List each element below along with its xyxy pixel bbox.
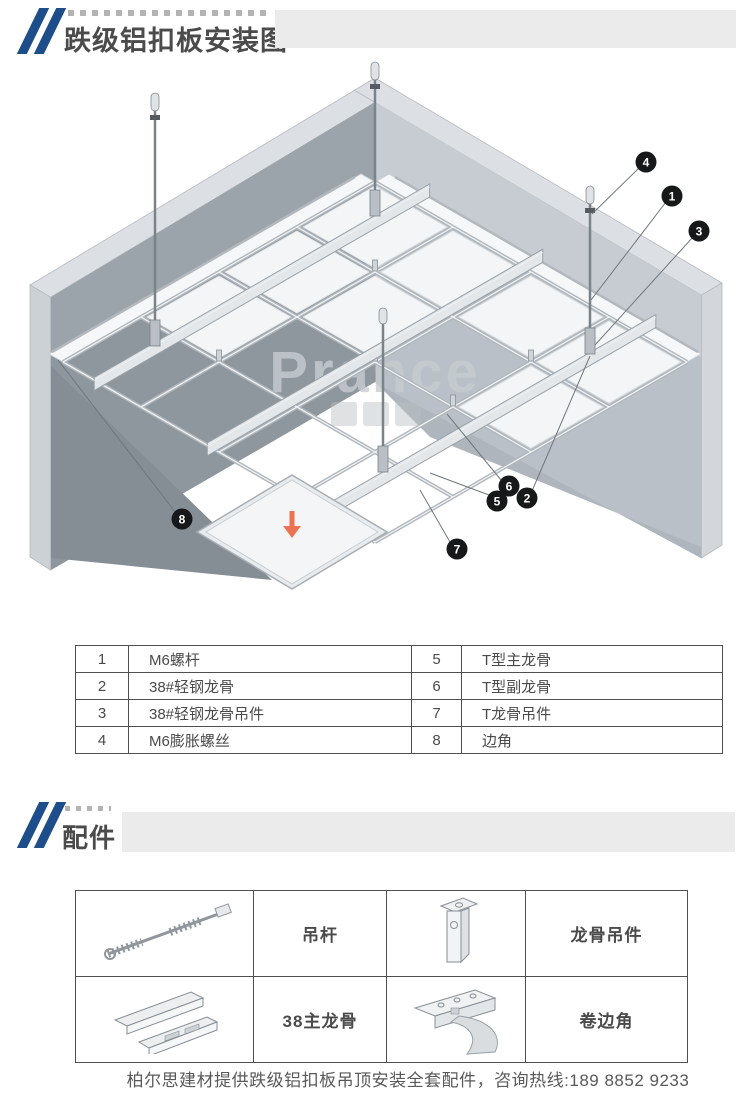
accessories-dotted-line	[65, 806, 111, 811]
accessory-label: 卷边角	[580, 1012, 634, 1031]
part-number: 1	[76, 646, 129, 673]
part-number: 7	[412, 700, 462, 727]
callout-number: 7	[454, 543, 461, 557]
part-name: M6螺杆	[129, 646, 412, 673]
expansion-bolt	[151, 93, 159, 111]
part-name: M6膨胀螺丝	[129, 727, 412, 754]
callout-2: 2	[517, 488, 538, 509]
part-number: 5	[412, 646, 462, 673]
expansion-bolt	[586, 186, 594, 204]
callout-number: 3	[696, 225, 703, 239]
accessory-image-cell	[387, 891, 526, 977]
callout-1: 1	[662, 186, 683, 207]
accessories-heading: 配件	[62, 818, 116, 855]
callout-number: 5	[494, 495, 501, 509]
table-row: 4 M6膨胀螺丝 8 边角	[76, 727, 723, 754]
accessories-table: 吊杆 龙骨吊件	[75, 890, 688, 1063]
part-number: 2	[76, 673, 129, 700]
left-wall-edge-face	[30, 285, 51, 570]
page: 跌级铝扣板安装图	[0, 0, 750, 1116]
part-name: T型主龙骨	[462, 646, 723, 673]
part-name: 边角	[462, 727, 723, 754]
callout-number: 6	[506, 480, 513, 494]
part-number: 4	[76, 727, 129, 754]
hanging-rod-image	[90, 894, 240, 968]
expansion-bolt	[379, 308, 387, 324]
rolled-edge-corner-image	[401, 978, 511, 1056]
table-row: 2 38#轻钢龙骨 6 T型副龙骨	[76, 673, 723, 700]
callout-number: 2	[524, 492, 531, 506]
callout-4: 4	[636, 152, 657, 173]
callout-7: 7	[447, 539, 468, 560]
part-name: T龙骨吊件	[462, 700, 723, 727]
accessory-image-cell	[387, 977, 526, 1063]
main-keel-38-image	[105, 980, 225, 1054]
right-wall-edge-face	[701, 283, 722, 558]
parts-table: 1 M6螺杆 5 T型主龙骨 2 38#轻钢龙骨 6 T型副龙骨 3 38#轻钢…	[75, 645, 723, 754]
keel-hanger-image	[411, 892, 501, 970]
part-number: 8	[412, 727, 462, 754]
part-name: T型副龙骨	[462, 673, 723, 700]
callout-8: 8	[172, 509, 193, 530]
callout-number: 4	[643, 156, 650, 170]
accessory-label: 吊杆	[302, 926, 338, 945]
keel-hanger-bracket	[150, 320, 160, 346]
keel-hanger-bracket	[378, 446, 388, 472]
table-row: 3 38#轻钢龙骨吊件 7 T龙骨吊件	[76, 700, 723, 727]
accessory-label: 38主龙骨	[283, 1012, 358, 1031]
keel-hanger-bracket	[370, 190, 380, 216]
expansion-bolt	[371, 62, 379, 80]
part-number: 6	[412, 673, 462, 700]
callout-number: 1	[669, 190, 676, 204]
accessory-label: 龙骨吊件	[571, 926, 643, 945]
callout-3: 3	[689, 221, 710, 242]
accessories-gray-bar	[122, 812, 735, 852]
accessory-image-cell	[76, 891, 254, 977]
part-number: 3	[76, 700, 129, 727]
part-name: 38#轻钢龙骨	[129, 673, 412, 700]
keel-hanger-bracket	[585, 328, 595, 354]
table-row: 38主龙骨 卷边角	[76, 977, 688, 1063]
callout-number: 8	[179, 513, 186, 527]
table-row: 1 M6螺杆 5 T型主龙骨	[76, 646, 723, 673]
footer-hotline-text: 柏尔思建材提供跌级铝扣板吊顶安装全套配件，咨询热线:189 8852 9233	[0, 1066, 750, 1091]
part-name: 38#轻钢龙骨吊件	[129, 700, 412, 727]
installation-diagram: Prance	[0, 0, 750, 640]
accessory-image-cell	[76, 977, 254, 1063]
table-row: 吊杆 龙骨吊件	[76, 891, 688, 977]
callout-6: 6	[499, 476, 520, 497]
watermark-cjk-blur	[331, 402, 421, 426]
